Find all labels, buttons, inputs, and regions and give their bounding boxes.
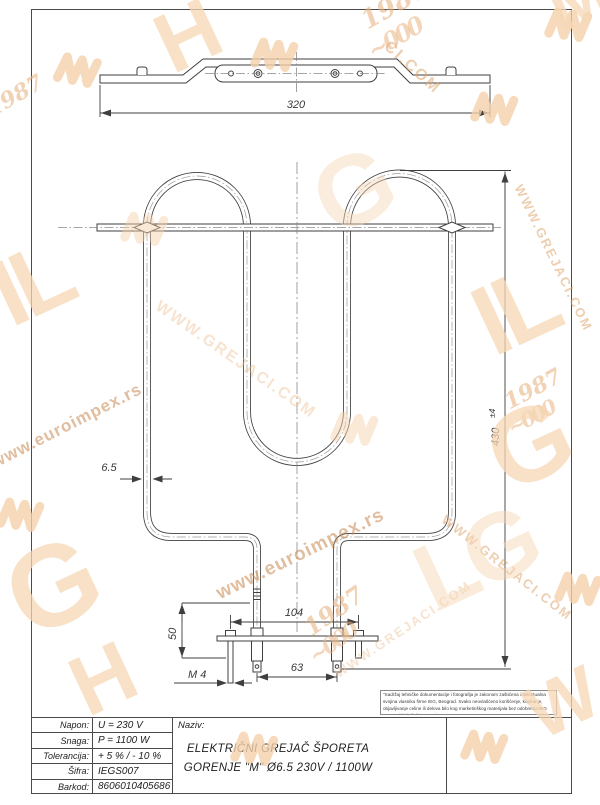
dim-104-text: 104: [285, 607, 303, 619]
spec-value: IEGS007: [93, 766, 172, 777]
terminal-body: [332, 641, 343, 661]
front-view: [58, 162, 502, 683]
dim-50: [182, 603, 250, 658]
dim-50-text: 50: [167, 627, 179, 640]
spec-label: Snaga:: [31, 733, 93, 747]
mounting-plate-front: [217, 636, 378, 641]
title-block-empty-cell: [447, 718, 572, 794]
spec-row-tolerancija: Tolerancija: + 5 % / - 10 %: [31, 749, 172, 764]
naziv-label: Naziv:: [178, 720, 204, 731]
stud-shaft-right: [356, 641, 362, 658]
product-name: ELEKTRIČNI GREJAČ ŠPORETA GORENJE "M" Ø6…: [175, 743, 381, 774]
stud-head: [226, 631, 236, 637]
spec-row-snaga: Snaga: P = 1100 W: [31, 733, 172, 748]
spec-value: 8606010405686: [93, 781, 172, 792]
product-name-line1: ELEKTRIČNI GREJAČ ŠPORETA: [175, 743, 381, 755]
dim-430: [341, 171, 511, 670]
terminal-assembly: [217, 628, 378, 683]
dim-320-text: 320: [287, 99, 306, 111]
dim-430-tolerance: ±4: [487, 408, 497, 418]
tube-end-clip-right: [446, 67, 456, 75]
dim-m4-text: M 4: [188, 669, 206, 681]
spec-value: P = 1100 W: [93, 735, 172, 746]
title-block: Napon: U = 230 V Snaga: P = 1100 W Toler…: [31, 717, 572, 794]
stud-head: [354, 631, 364, 637]
tube-end-clip-left: [137, 67, 147, 75]
title-block-specs: Napon: U = 230 V Snaga: P = 1100 W Toler…: [31, 718, 173, 794]
spec-label: Šifra:: [31, 764, 93, 778]
spec-value: + 5 % / - 10 %: [93, 751, 172, 762]
product-name-line2: GORENJE "M" Ø6.5 230V / 1100W: [175, 762, 381, 774]
spec-row-napon: Napon: U = 230 V: [31, 718, 172, 733]
top-view: [100, 52, 490, 92]
heater-tube-outline: [147, 174, 452, 672]
dim-63-text: 63: [291, 662, 304, 674]
heater-tube-centerline: [147, 174, 452, 672]
spec-label: Tolerancija:: [31, 749, 93, 763]
terminal-body: [252, 641, 263, 661]
stud-shaft-left: [228, 641, 233, 683]
dim-430-text: 430: [490, 427, 502, 446]
spec-row-sifra: Šifra: IEGS007: [31, 764, 172, 779]
terminal-pin-hole: [255, 665, 259, 669]
disclaimer-text: "Sadržaj tehničke dokumentacije i fotogr…: [383, 692, 547, 715]
terminal-pin-hole: [335, 665, 339, 669]
page-root: { "colors": { "line": "#3f3f3f", "frame"…: [0, 0, 600, 800]
spec-value: U = 230 V: [93, 720, 172, 731]
terminal-collar: [331, 628, 343, 636]
technical-drawing: 320: [0, 0, 600, 800]
spec-label: Napon:: [31, 718, 93, 732]
dim-63: [257, 673, 337, 682]
dim-6-5-text: 6.5: [101, 462, 117, 474]
spec-row-barkod: Barkod: 8606010405686: [31, 780, 172, 794]
heater-tube-fill: [147, 174, 452, 672]
terminal-collar: [251, 628, 263, 636]
spec-label: Barkod:: [31, 780, 93, 794]
disclaimer-box: "Sadržaj tehničke dokumentacije i fotogr…: [380, 690, 557, 715]
title-block-naziv: Naziv: ELEKTRIČNI GREJAČ ŠPORETA GORENJE…: [173, 718, 447, 794]
